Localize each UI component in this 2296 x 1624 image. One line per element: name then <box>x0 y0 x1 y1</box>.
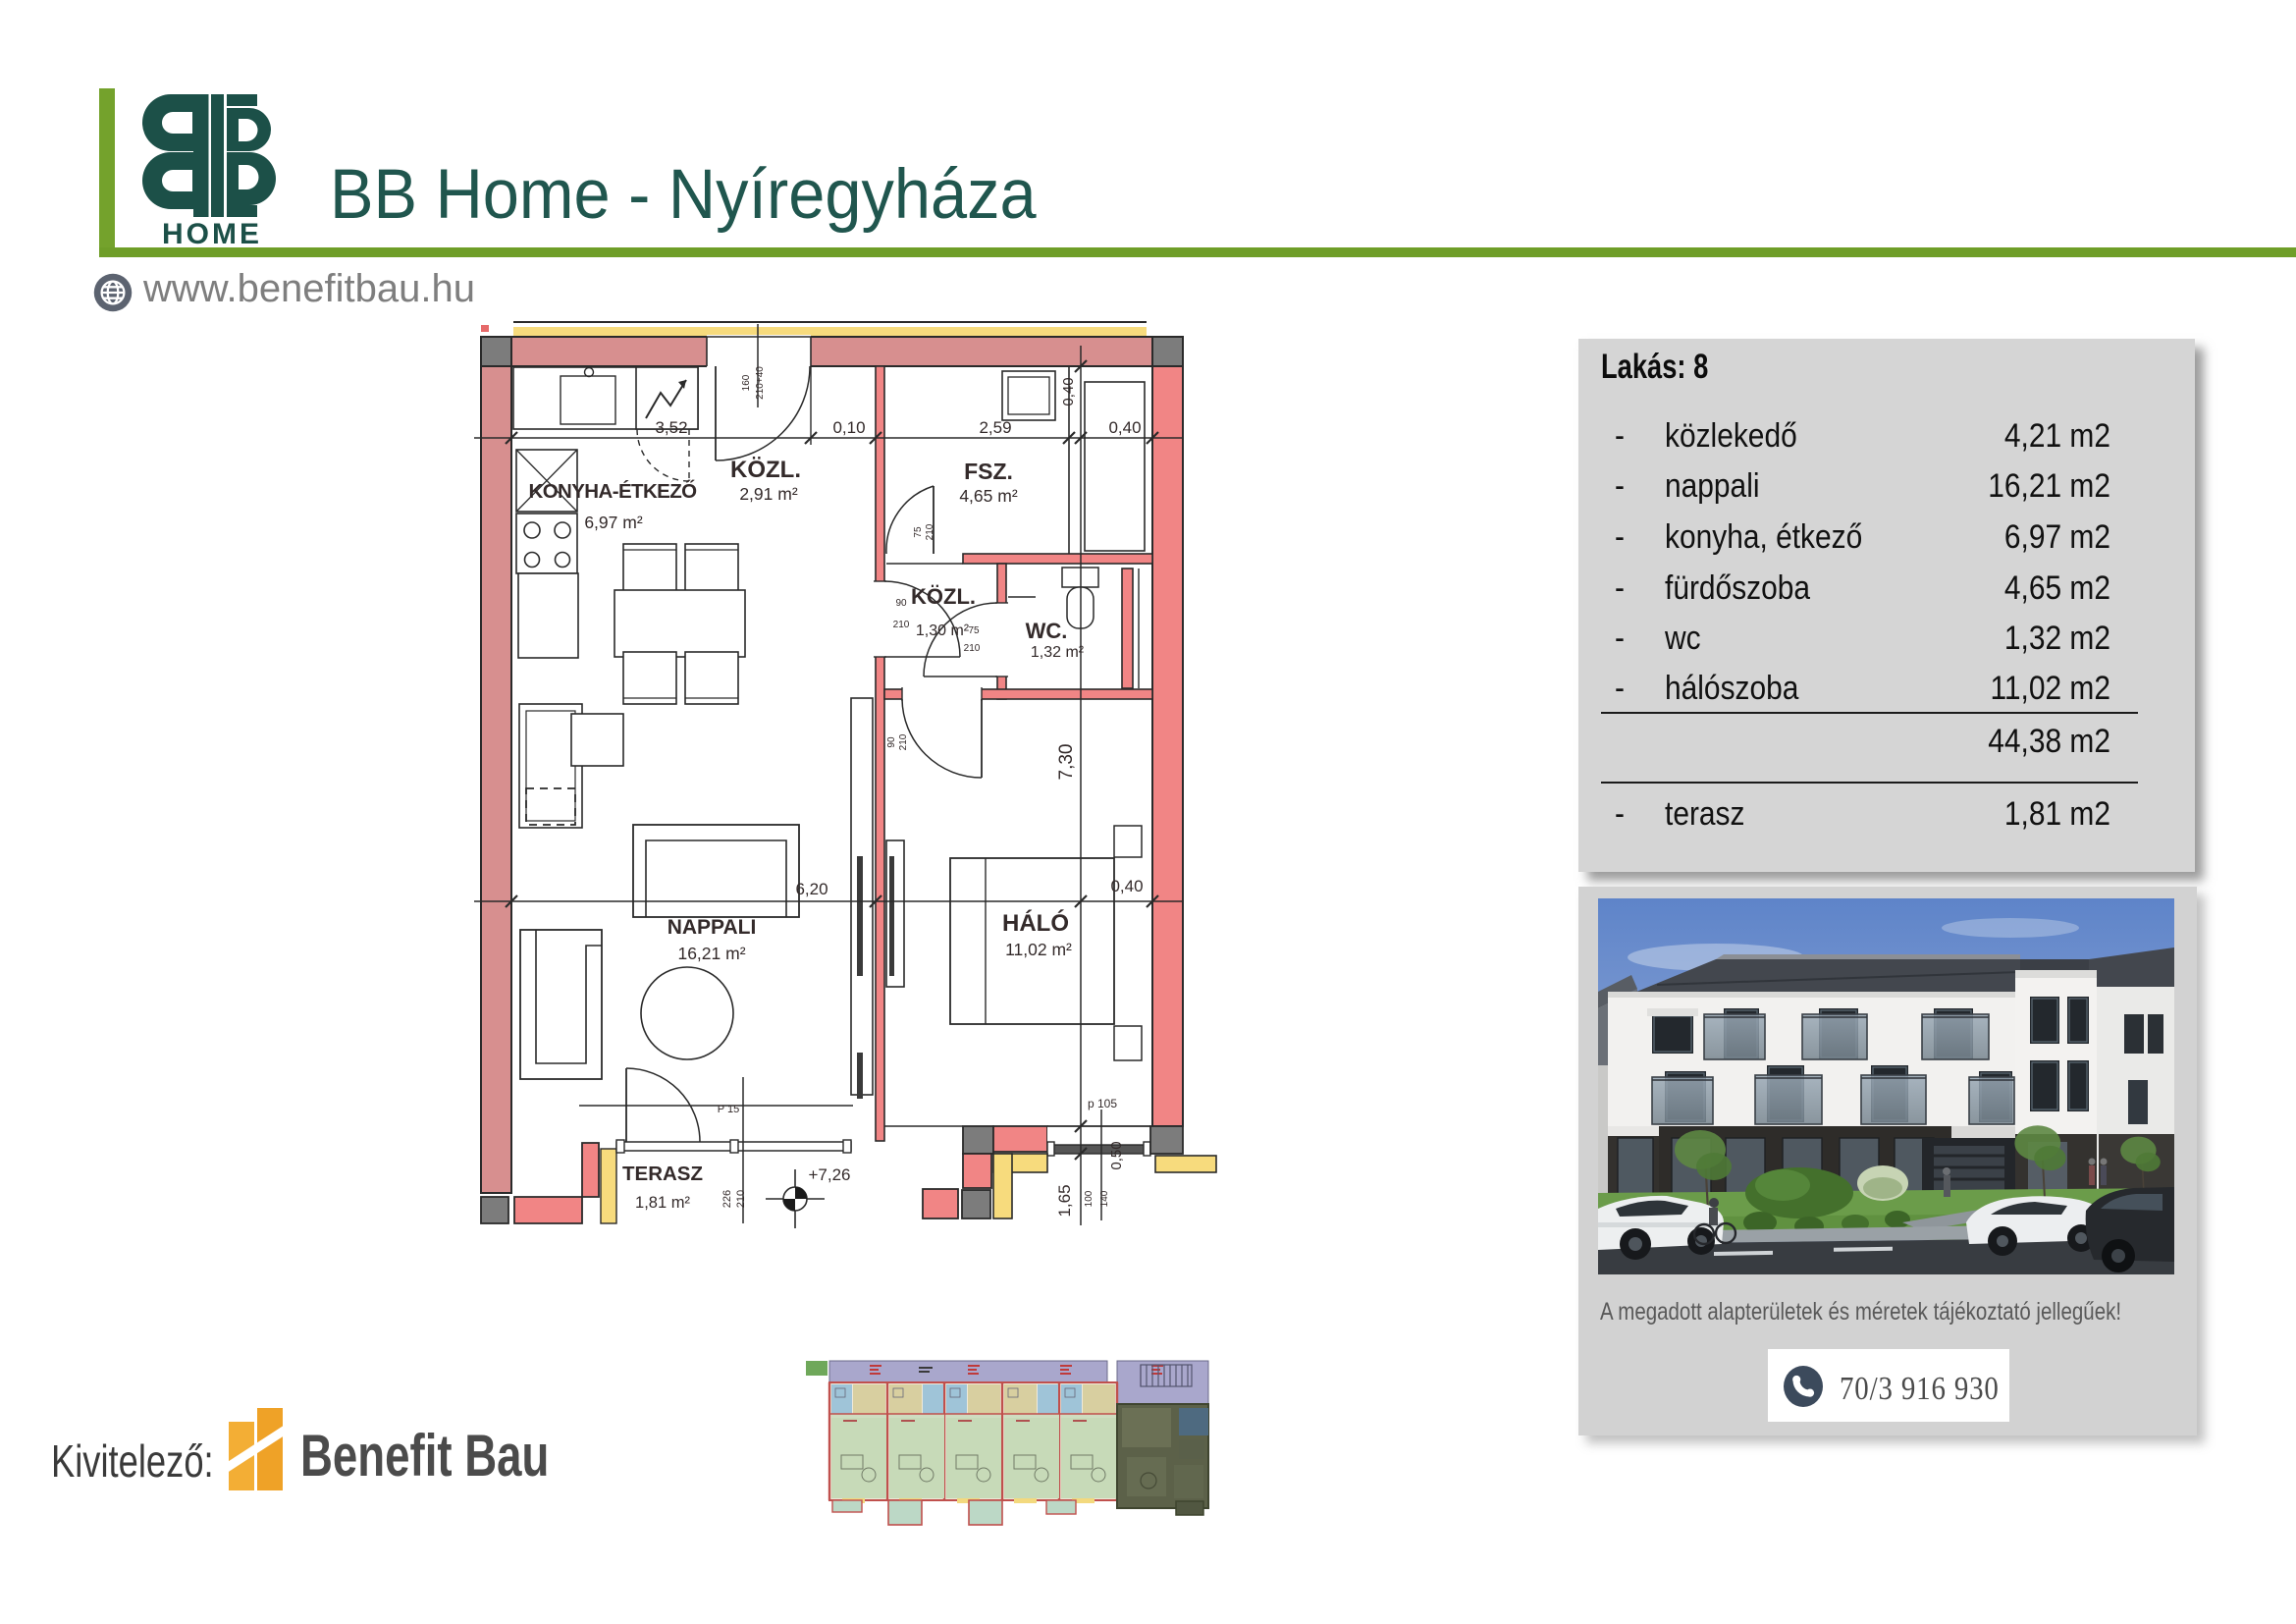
svg-text:1,32 m²: 1,32 m² <box>1031 644 1085 661</box>
svg-text:75: 75 <box>913 526 924 538</box>
svg-text:KÖZL.: KÖZL. <box>911 584 976 609</box>
svg-text:TERASZ: TERASZ <box>622 1163 703 1185</box>
svg-text:0,40: 0,40 <box>1110 877 1143 895</box>
svg-text:210: 210 <box>735 1190 747 1208</box>
svg-text:6,20: 6,20 <box>795 880 828 898</box>
svg-text:90: 90 <box>895 598 907 609</box>
svg-text:p 105: p 105 <box>1088 1097 1117 1110</box>
svg-text:16,21 m²: 16,21 m² <box>677 944 745 963</box>
svg-text:KONYHA-ÉTKEZŐ: KONYHA-ÉTKEZŐ <box>528 480 697 503</box>
svg-text:210: 210 <box>893 620 910 630</box>
svg-text:210+40: 210+40 <box>755 366 766 400</box>
svg-text:0,40: 0,40 <box>1060 377 1077 406</box>
svg-text:140: 140 <box>1099 1190 1110 1207</box>
svg-text:1,81 m²: 1,81 m² <box>635 1194 690 1212</box>
svg-text:75: 75 <box>968 625 980 636</box>
svg-text:11,02 m²: 11,02 m² <box>1005 940 1072 959</box>
svg-text:2,91 m²: 2,91 m² <box>739 484 797 504</box>
svg-text:7,30: 7,30 <box>1056 744 1077 781</box>
svg-text:1,65: 1,65 <box>1055 1184 1074 1217</box>
svg-text:2,59: 2,59 <box>979 418 1011 437</box>
svg-text:HOME: HOME <box>162 218 262 250</box>
svg-text:FSZ.: FSZ. <box>964 459 1013 484</box>
svg-text:P 15: P 15 <box>718 1104 739 1115</box>
svg-text:KÖZL.: KÖZL. <box>730 457 801 483</box>
svg-text:3,52: 3,52 <box>655 418 687 437</box>
svg-text:HÁLÓ: HÁLÓ <box>1002 909 1069 937</box>
svg-text:100: 100 <box>1084 1190 1095 1207</box>
svg-text:NAPPALI: NAPPALI <box>667 916 757 939</box>
svg-text:+7,26: +7,26 <box>808 1165 850 1184</box>
svg-text:210: 210 <box>964 643 981 654</box>
svg-text:210: 210 <box>898 733 909 750</box>
svg-text:90: 90 <box>886 736 897 748</box>
svg-text:WC.: WC. <box>1026 619 1068 643</box>
svg-text:160: 160 <box>741 374 752 391</box>
svg-text:0,10: 0,10 <box>832 418 865 437</box>
svg-text:0,40: 0,40 <box>1108 418 1141 437</box>
svg-text:0,50: 0,50 <box>1108 1141 1125 1169</box>
svg-text:4,65 m²: 4,65 m² <box>959 486 1017 506</box>
svg-text:210: 210 <box>925 523 935 540</box>
svg-text:226: 226 <box>721 1190 733 1208</box>
svg-text:6,97 m²: 6,97 m² <box>584 513 642 532</box>
svg-text:1,30 m²: 1,30 m² <box>916 623 970 639</box>
